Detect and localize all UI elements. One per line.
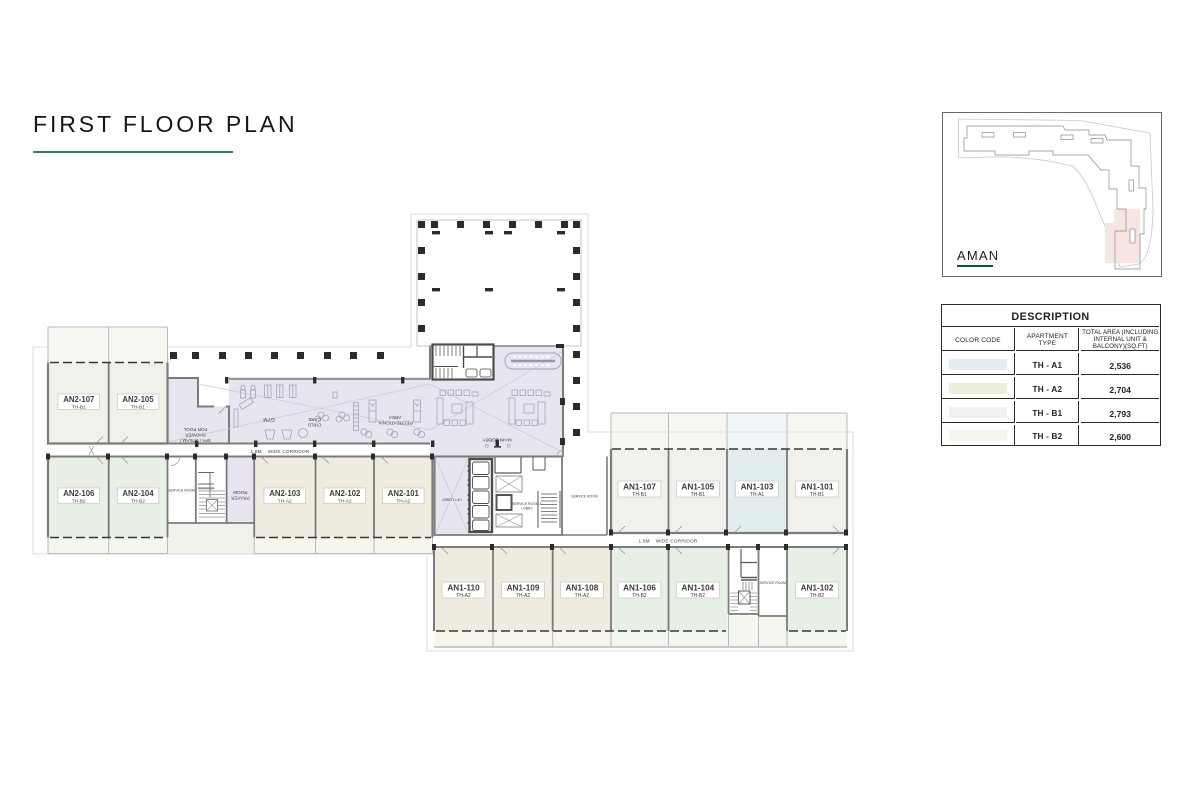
svg-text:AN2-107: AN2-107 (63, 395, 94, 404)
svg-text:RECREATIONAL: RECREATIONAL (377, 421, 413, 426)
svg-text:AN2-101: AN2-101 (388, 489, 420, 498)
svg-text:PRAYER: PRAYER (230, 496, 249, 501)
svg-text:LOBBY: LOBBY (521, 507, 533, 511)
svg-text:TH-B2: TH-B2 (72, 499, 86, 505)
svg-text:TH-A2: TH-A2 (278, 499, 292, 505)
svg-text:LIFT LOBBY: LIFT LOBBY (441, 498, 462, 502)
svg-text:AN2-106: AN2-106 (63, 489, 95, 498)
svg-text:TH-A2: TH-A2 (575, 593, 590, 599)
svg-text:TH-B2: TH-B2 (131, 499, 145, 505)
svg-text:SERVICE ROOM: SERVICE ROOM (168, 489, 194, 493)
svg-text:AREA: AREA (388, 415, 401, 420)
svg-text:TH-A2: TH-A2 (338, 499, 352, 505)
svg-text:TH-A2: TH-A2 (456, 593, 471, 599)
svg-text:AN1-105: AN1-105 (681, 483, 714, 492)
svg-text:SHOWER: SHOWER (184, 433, 205, 438)
svg-text:TH-B2: TH-B2 (632, 593, 647, 599)
svg-text:ROOM: ROOM (233, 490, 247, 495)
svg-text:TH-B1: TH-B1 (810, 492, 825, 498)
svg-text:TH-A2: TH-A2 (516, 593, 531, 599)
svg-text:SERVICE ROOM: SERVICE ROOM (571, 495, 597, 499)
svg-text:TH-B2: TH-B2 (691, 593, 706, 599)
svg-text:AN1-110: AN1-110 (447, 584, 480, 593)
svg-text:AN1-108: AN1-108 (566, 584, 599, 593)
svg-text:TH-A2: TH-A2 (396, 499, 410, 505)
svg-text:CARE: CARE (308, 417, 321, 422)
svg-text:AN2-103: AN2-103 (269, 489, 301, 498)
svg-text:TH-B2: TH-B2 (810, 593, 825, 599)
svg-text:AN1-106: AN1-106 (623, 584, 656, 593)
svg-text:AN1-101: AN1-101 (801, 483, 834, 492)
svg-text:AN1-109: AN1-109 (507, 584, 540, 593)
svg-text:SERVICE ROOM &: SERVICE ROOM & (512, 502, 542, 506)
svg-text:TH-B1: TH-B1 (131, 405, 145, 411)
svg-text:TH-A1: TH-A1 (750, 492, 765, 498)
svg-text:GYM: GYM (263, 416, 274, 422)
svg-text:AN1-103: AN1-103 (741, 483, 774, 492)
svg-text:AN2-105: AN2-105 (122, 395, 154, 404)
svg-text:1.8M WIDE CORRIDOR: 1.8M WIDE CORRIDOR (251, 449, 310, 454)
svg-text:AN1-107: AN1-107 (623, 483, 656, 492)
svg-text:1.8M WIDE CORRIDOR: 1.8M WIDE CORRIDOR (639, 539, 698, 544)
svg-text:FOR POOL: FOR POOL (183, 427, 207, 432)
svg-text:SERVICE ROOM: SERVICE ROOM (760, 581, 786, 585)
svg-text:AN1-102: AN1-102 (801, 584, 834, 593)
svg-text:CHILD: CHILD (307, 423, 321, 428)
svg-text:AN2-104: AN2-104 (122, 489, 154, 498)
svg-text:TH-B1: TH-B1 (691, 492, 706, 498)
svg-text:AN2-102: AN2-102 (329, 489, 361, 498)
svg-text:TH-B1: TH-B1 (632, 492, 647, 498)
svg-text:TH-B1: TH-B1 (72, 405, 86, 411)
svg-text:SPA / STEAM /: SPA / STEAM / (179, 438, 211, 443)
svg-text:AN1-104: AN1-104 (681, 584, 714, 593)
